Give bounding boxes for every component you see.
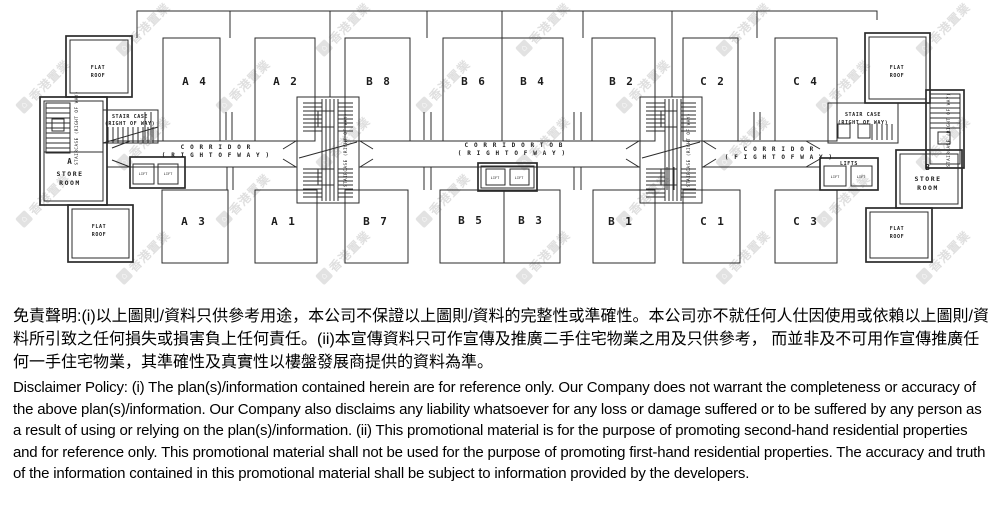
unit-outline: [345, 38, 410, 141]
corridor-label: C O R R I D O R: [744, 146, 815, 153]
store-room-b: B STORE ROOM: [896, 150, 962, 208]
unit-label: B 5: [458, 214, 484, 227]
flat-roof-bottom-left: FLAT ROOF: [68, 205, 133, 262]
corridor-label: ( R I G H T O F W A Y ): [458, 150, 566, 157]
lift-label: LIFT: [857, 175, 866, 179]
unit-B5: B 5: [440, 190, 504, 263]
corridor-label: C O R R I D O R T O B: [465, 142, 564, 149]
flat-roof-top-left: FLAT ROOF: [66, 36, 132, 97]
unit-A2: A 2: [255, 38, 315, 141]
corridor-label: ( F I G H T O F W A Y ): [725, 154, 833, 161]
stair-landing: [52, 119, 64, 131]
lift-label: LIFT: [139, 172, 148, 176]
unit-B8: B 8: [345, 38, 410, 141]
unit-label: C 4: [793, 75, 819, 88]
unit-A3: A 3: [162, 190, 228, 263]
store-room-b-label: ROOM: [917, 184, 939, 192]
unit-B3: B 3: [504, 190, 560, 263]
floor-plan: STAIRCASE (RIGHT OF WAY) A 4 A 2 B 8 B 6…: [0, 0, 1004, 302]
unit-outline: [255, 38, 315, 141]
staircase-label: (RIGHT OF WAY): [105, 121, 156, 127]
unit-B1: B 1: [593, 190, 655, 263]
unit-C1: C 1: [683, 190, 740, 263]
unit-label: C 3: [793, 215, 819, 228]
lift-lobby-left: LIFT LIFT: [130, 157, 185, 188]
unit-label: A 2: [273, 75, 299, 88]
unit-label: B 3: [518, 214, 544, 227]
staircase-label: (RIGHT OF WAY): [838, 120, 889, 126]
unit-label: B 6: [461, 75, 487, 88]
flat-roof-label: FLAT: [92, 224, 106, 230]
floor-plan-page: ⌂香港置業⌂香港置業⌂香港置業⌂香港置業⌂香港置業⌂香港置業⌂香港置業⌂香港置業…: [0, 0, 1004, 519]
unit-label: A 4: [182, 75, 208, 88]
unit-B2: B 2: [592, 38, 655, 141]
unit-label: B 2: [609, 75, 635, 88]
unit-label: A 1: [271, 215, 297, 228]
flat-roof-label: FLAT: [890, 226, 904, 232]
flat-roof-top-right: FLAT ROOF: [865, 33, 930, 103]
lift-label: LIFT: [164, 172, 173, 176]
store-room-a-label: STORE: [56, 170, 83, 178]
flat-roof-label: ROOF: [91, 73, 105, 79]
lifts-label: LIFTS: [840, 161, 858, 167]
lift-label: LIFT: [491, 176, 500, 180]
unit-label: B 7: [363, 215, 389, 228]
staircase-vertical-label: STAIRCASE (RIGHT OF WAY): [946, 93, 952, 167]
corridor-text-right: C O R R I D O R ( F I G H T O F W A Y ): [725, 146, 833, 161]
flat-roof-label: FLAT: [91, 65, 105, 71]
stair-treads: [930, 98, 960, 128]
flat-roof-label: ROOF: [890, 234, 904, 240]
unit-label: A 3: [181, 215, 207, 228]
unit-label: B 1: [608, 215, 634, 228]
stair-landing: [838, 124, 850, 138]
unit-A4: A 4: [163, 38, 220, 141]
stair-tower-mid-right: [640, 97, 702, 203]
unit-label: B 8: [366, 75, 392, 88]
disclaimer-en: Disclaimer Policy: (i) The plan(s)/infor…: [13, 377, 993, 485]
unit-outline: [592, 38, 655, 141]
corridor-text-left: C O R R I D O R ( R I G H T O F W A Y ): [162, 144, 270, 159]
unit-label: B 4: [520, 75, 546, 88]
lift-lobby-right: LIFTS LIFT LIFT: [820, 158, 878, 190]
store-room-a-label: ROOM: [59, 179, 81, 187]
unit-B7: B 7: [345, 190, 408, 263]
stair-treads: [46, 108, 70, 148]
stair-landing: [858, 124, 870, 138]
flat-roof-label: ROOF: [890, 73, 904, 79]
disclaimer-zh: 免責聲明:(i)以上圖則/資料只供參考用途，本公司不保證以上圖則/資料的完整性或…: [13, 305, 993, 374]
unit-B4: B 4: [502, 38, 563, 141]
lift-label: LIFT: [515, 176, 524, 180]
corridor-label: ( R I G H T O F W A Y ): [162, 152, 270, 159]
disclaimer: 免責聲明:(i)以上圖則/資料只供參考用途，本公司不保證以上圖則/資料的完整性或…: [13, 305, 993, 485]
staircase-right-upper: STAIR CASE (RIGHT OF WAY): [828, 103, 898, 143]
corridor-text-center: C O R R I D O R T O B ( R I G H T O F W …: [458, 142, 566, 157]
tower-left: STAIRCASE (RIGHT OF WAY) A STORE ROOM: [40, 91, 107, 205]
flat-roof-label: ROOF: [92, 232, 106, 238]
boundary-lines: [137, 11, 877, 97]
unit-B6: B 6: [443, 38, 502, 141]
store-room-b-label: B: [925, 163, 931, 172]
stair-tower-mid-left: [297, 97, 359, 203]
unit-outline: [163, 38, 220, 141]
unit-A1: A 1: [255, 190, 317, 263]
flat-roof-label: FLAT: [890, 65, 904, 71]
unit-outline: [443, 38, 502, 141]
store-room-a-label: A: [67, 157, 73, 166]
corridor-label: C O R R I D O R: [181, 144, 252, 151]
unit-C3: C 3: [775, 190, 837, 263]
staircase-vertical-label: STAIRCASE (RIGHT OF WAY): [74, 91, 80, 165]
staircase-left-upper: STAIR CASE (RIGHT OF WAY): [103, 110, 158, 143]
unit-label: C 2: [700, 75, 726, 88]
staircase-label: STAIR CASE: [112, 114, 148, 120]
unit-label: C 1: [700, 215, 726, 228]
staircase-label: STAIR CASE: [845, 112, 881, 118]
store-room-b-label: STORE: [914, 175, 941, 183]
stair-treads: [872, 124, 892, 140]
lift-label: LIFT: [831, 175, 840, 179]
unit-outline: [502, 38, 563, 141]
flat-roof-bottom-right: FLAT ROOF: [866, 208, 932, 262]
